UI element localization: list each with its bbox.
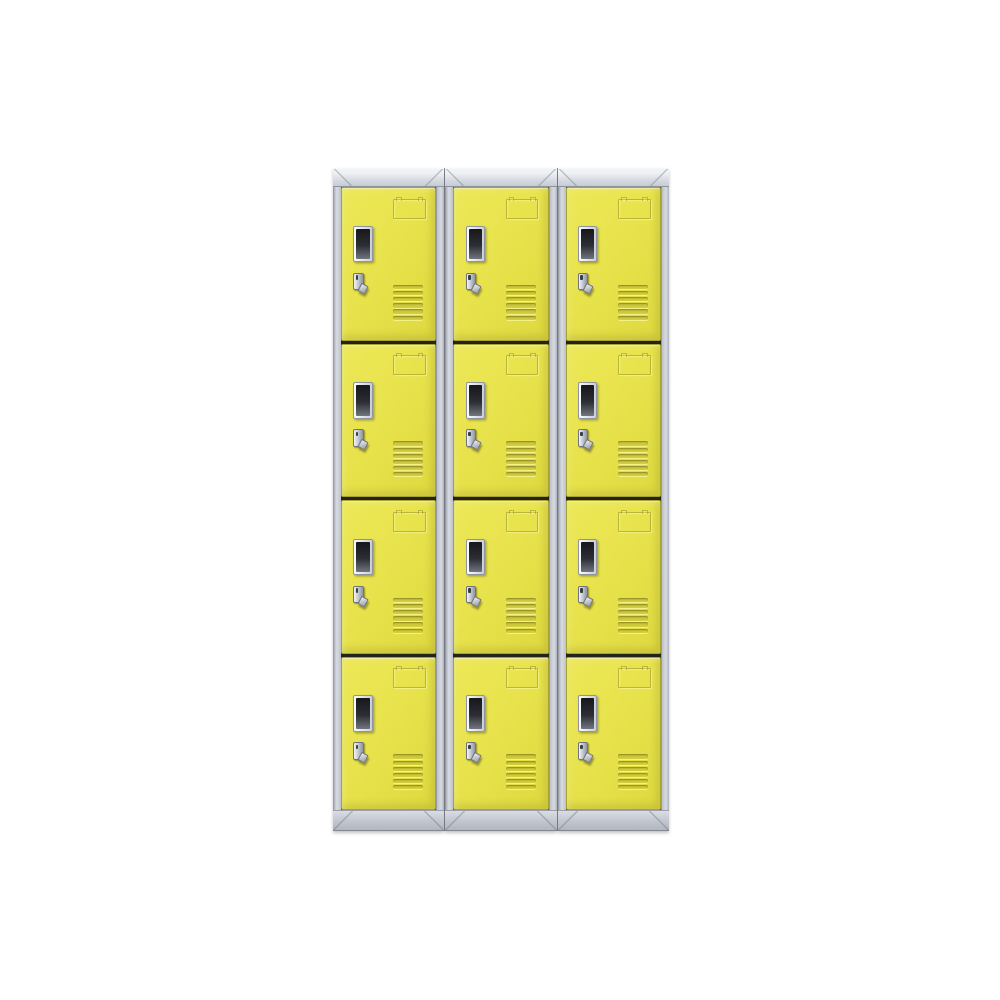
- handle-keyslot: [580, 745, 583, 750]
- vent-slat: [506, 303, 536, 307]
- cam-lock-handle: [578, 273, 595, 294]
- name-card-window: [466, 695, 486, 731]
- cam-lock-handle: [578, 586, 595, 607]
- vent-slat: [506, 773, 536, 777]
- vent-slat: [506, 785, 536, 789]
- cabinet-base-plinth: [333, 810, 444, 831]
- locker-door: [341, 657, 436, 811]
- vent-slat: [393, 472, 423, 476]
- vent-slat: [618, 773, 648, 777]
- name-card-window: [466, 382, 486, 418]
- vent-slat: [393, 598, 423, 602]
- window-glass: [356, 385, 370, 415]
- vent-slat: [393, 785, 423, 789]
- vent-slat: [618, 785, 648, 789]
- label-holder-emboss: [506, 199, 539, 219]
- vent-slat: [618, 604, 648, 608]
- vent-slat: [393, 754, 423, 758]
- vent-slat: [618, 316, 648, 320]
- name-card-window: [353, 382, 373, 418]
- label-holder-emboss: [506, 355, 539, 375]
- label-holder-emboss: [618, 199, 651, 219]
- vent-slat: [618, 309, 648, 313]
- cam-lock-handle: [466, 273, 483, 294]
- vent-slat: [506, 472, 536, 476]
- name-card-window: [578, 382, 598, 418]
- vent-slat: [618, 754, 648, 758]
- vent-slat: [393, 767, 423, 771]
- vent-slat: [506, 441, 536, 445]
- cabinet-base-plinth: [445, 810, 556, 831]
- window-glass: [581, 385, 595, 415]
- cabinet-right-frame: [436, 187, 444, 810]
- handle-lever: [357, 752, 368, 764]
- cam-lock-handle: [466, 586, 483, 607]
- handle-keyslot: [468, 432, 471, 437]
- vent-slat: [506, 297, 536, 301]
- vent-slat: [393, 291, 423, 295]
- locker-cabinet: [445, 168, 556, 831]
- handle-keyslot: [580, 432, 583, 437]
- vent-slat: [506, 285, 536, 289]
- handle-keyslot: [580, 275, 583, 280]
- cam-lock-handle: [466, 742, 483, 763]
- vent-slat: [506, 767, 536, 771]
- vent-slat: [618, 460, 648, 464]
- vent-slats: [506, 754, 536, 789]
- handle-keyslot: [356, 275, 359, 280]
- handle-keyslot: [468, 745, 471, 750]
- vent-slat: [506, 316, 536, 320]
- vent-slat: [506, 448, 536, 452]
- window-glass: [581, 698, 595, 728]
- vent-slat: [618, 454, 648, 458]
- locker-cabinet: [558, 168, 669, 831]
- vent-slat: [506, 610, 536, 614]
- cam-lock-handle: [353, 273, 370, 294]
- window-glass: [469, 542, 483, 572]
- vent-slat: [618, 767, 648, 771]
- label-holder-emboss: [506, 668, 539, 688]
- vent-slat: [506, 291, 536, 295]
- vent-slat: [393, 297, 423, 301]
- vent-slat: [618, 779, 648, 783]
- name-card-window: [466, 539, 486, 575]
- locker-door: [566, 657, 661, 811]
- name-card-window: [578, 695, 598, 731]
- vent-slat: [618, 610, 648, 614]
- handle-keyslot: [468, 275, 471, 280]
- label-holder-emboss: [393, 512, 426, 532]
- handle-keyslot: [356, 432, 359, 437]
- vent-slat: [506, 761, 536, 765]
- name-card-window: [466, 226, 486, 262]
- vent-slat: [393, 303, 423, 307]
- vent-slat: [618, 448, 648, 452]
- cabinet-base-plinth: [558, 810, 669, 831]
- locker-door: [341, 500, 436, 654]
- vent-slat: [618, 466, 648, 470]
- locker-door: [453, 187, 548, 341]
- cabinet-left-frame: [333, 187, 341, 810]
- name-card-window: [578, 226, 598, 262]
- vent-slat: [506, 616, 536, 620]
- vent-slat: [506, 466, 536, 470]
- label-holder-emboss: [393, 355, 426, 375]
- vent-slat: [506, 454, 536, 458]
- vent-slats: [506, 598, 536, 633]
- vent-slat: [618, 291, 648, 295]
- cam-lock-handle: [578, 429, 595, 450]
- vent-slat: [618, 472, 648, 476]
- vent-slat: [506, 309, 536, 313]
- locker-door: [453, 500, 548, 654]
- cam-lock-handle: [353, 429, 370, 450]
- vent-slat: [618, 297, 648, 301]
- vent-slat: [618, 629, 648, 633]
- handle-lever: [357, 439, 368, 451]
- window-glass: [469, 698, 483, 728]
- vent-slat: [618, 598, 648, 602]
- cabinet-body: [333, 187, 444, 810]
- vent-slat: [393, 285, 423, 289]
- vent-slat: [506, 754, 536, 758]
- locker-door: [453, 657, 548, 811]
- cabinet-top-cap: [333, 168, 444, 187]
- label-holder-emboss: [618, 668, 651, 688]
- locker-door: [341, 344, 436, 498]
- locker-door: [341, 187, 436, 341]
- vent-slat: [393, 448, 423, 452]
- vent-slat: [618, 761, 648, 765]
- label-holder-emboss: [618, 355, 651, 375]
- name-card-window: [353, 226, 373, 262]
- window-glass: [356, 542, 370, 572]
- window-glass: [356, 698, 370, 728]
- cabinet-body: [445, 187, 556, 810]
- vent-slat: [393, 773, 423, 777]
- locker-door: [566, 187, 661, 341]
- window-glass: [581, 542, 595, 572]
- locker-cabinet: [333, 168, 444, 831]
- vent-slat: [618, 303, 648, 307]
- vent-slat: [506, 622, 536, 626]
- cabinet-top-cap: [445, 168, 556, 187]
- handle-keyslot: [580, 588, 583, 593]
- vent-slat: [506, 598, 536, 602]
- label-holder-emboss: [393, 199, 426, 219]
- cabinet-right-frame: [661, 187, 669, 810]
- vent-slats: [506, 285, 536, 320]
- door-stack: [341, 187, 436, 810]
- door-stack: [453, 187, 548, 810]
- vent-slat: [393, 761, 423, 765]
- vent-slats: [618, 598, 648, 633]
- window-glass: [469, 385, 483, 415]
- name-card-window: [578, 539, 598, 575]
- cabinet-left-frame: [558, 187, 566, 810]
- vent-slat: [393, 616, 423, 620]
- vent-slat: [618, 622, 648, 626]
- vent-slats: [506, 441, 536, 476]
- vent-slat: [506, 629, 536, 633]
- locker-unit: [333, 168, 669, 831]
- vent-slat: [393, 622, 423, 626]
- vent-slats: [393, 754, 423, 789]
- vent-slats: [618, 441, 648, 476]
- vent-slat: [393, 604, 423, 608]
- cabinet-body: [558, 187, 669, 810]
- locker-door: [453, 344, 548, 498]
- product-photo-canvas: [0, 0, 1000, 1000]
- name-card-window: [353, 695, 373, 731]
- vent-slats: [393, 441, 423, 476]
- vent-slat: [506, 460, 536, 464]
- window-glass: [469, 229, 483, 259]
- vent-slat: [618, 285, 648, 289]
- vent-slats: [618, 285, 648, 320]
- label-holder-emboss: [506, 512, 539, 532]
- vent-slats: [393, 285, 423, 320]
- locker-door: [566, 500, 661, 654]
- cabinet-right-frame: [549, 187, 557, 810]
- vent-slats: [393, 598, 423, 633]
- cabinet-left-frame: [445, 187, 453, 810]
- cam-lock-handle: [466, 429, 483, 450]
- vent-slat: [618, 616, 648, 620]
- vent-slat: [618, 441, 648, 445]
- vent-slat: [393, 779, 423, 783]
- vent-slat: [506, 604, 536, 608]
- vent-slat: [393, 460, 423, 464]
- handle-keyslot: [468, 588, 471, 593]
- name-card-window: [353, 539, 373, 575]
- vent-slat: [393, 309, 423, 313]
- label-holder-emboss: [393, 668, 426, 688]
- vent-slat: [393, 466, 423, 470]
- cam-lock-handle: [578, 742, 595, 763]
- vent-slat: [506, 779, 536, 783]
- handle-keyslot: [356, 745, 359, 750]
- vent-slat: [393, 454, 423, 458]
- vent-slat: [393, 316, 423, 320]
- window-glass: [581, 229, 595, 259]
- vent-slat: [393, 441, 423, 445]
- locker-door: [566, 344, 661, 498]
- window-glass: [356, 229, 370, 259]
- label-holder-emboss: [618, 512, 651, 532]
- vent-slat: [393, 629, 423, 633]
- cam-lock-handle: [353, 742, 370, 763]
- vent-slat: [393, 610, 423, 614]
- cabinet-top-cap: [558, 168, 669, 187]
- handle-keyslot: [356, 588, 359, 593]
- vent-slats: [618, 754, 648, 789]
- door-stack: [566, 187, 661, 810]
- cam-lock-handle: [353, 586, 370, 607]
